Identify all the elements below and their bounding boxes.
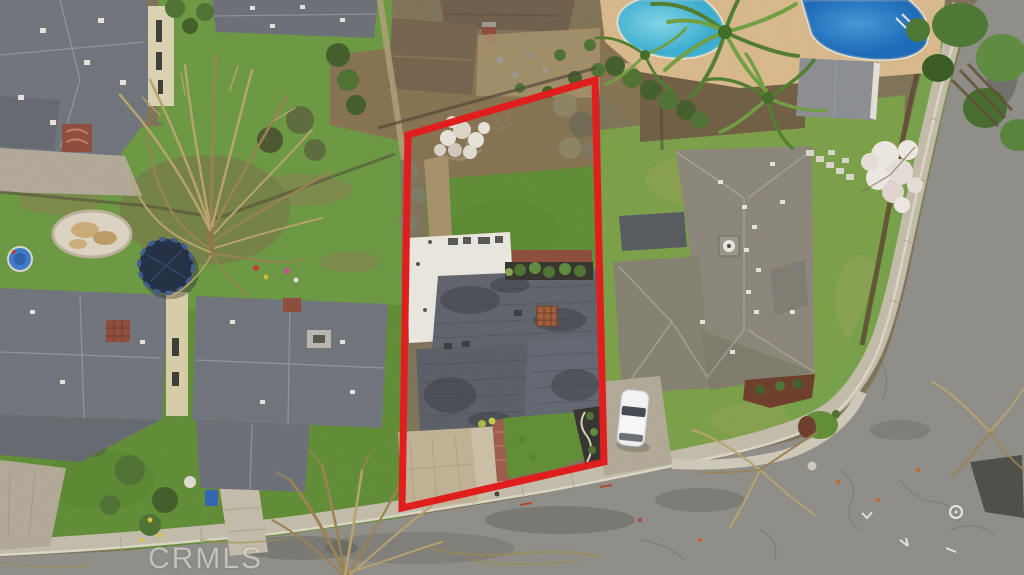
photo-grain [0,0,1024,575]
aerial-scene [0,0,1024,575]
crmls-watermark: CRMLS [148,542,263,575]
aerial-property-photo: CRMLS [0,0,1024,575]
